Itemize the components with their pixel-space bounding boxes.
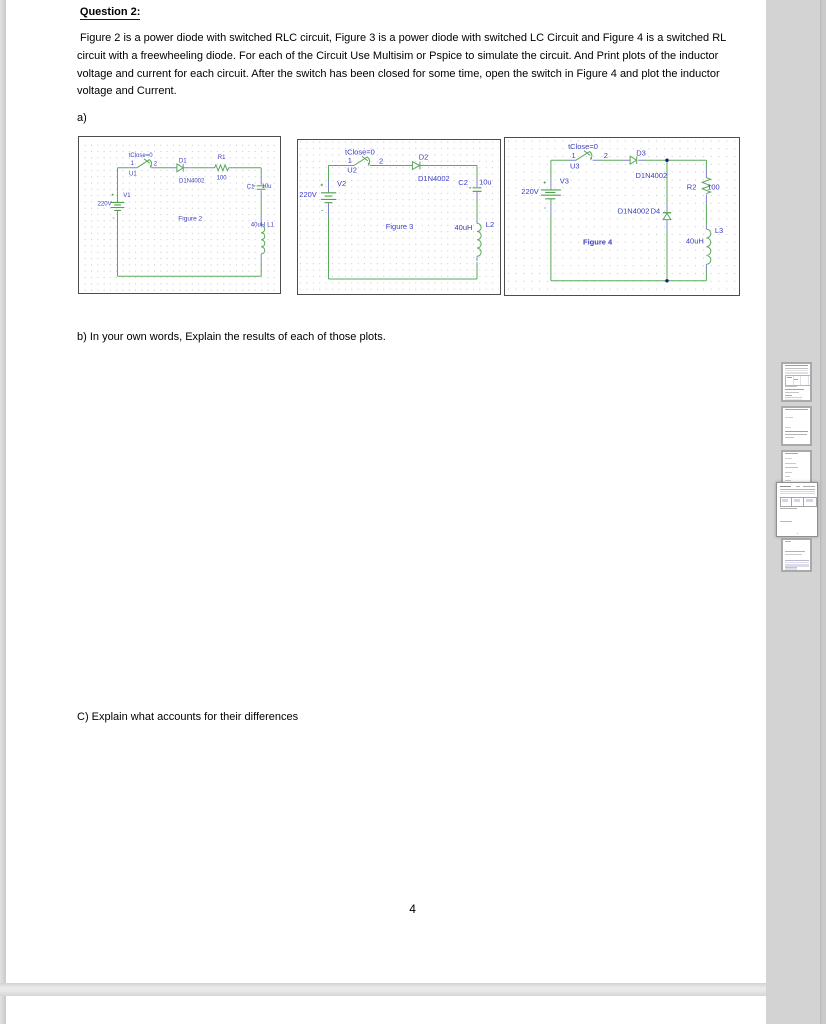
svg-text:D1N4002: D1N4002 — [617, 206, 649, 215]
svg-text:R1: R1 — [217, 155, 225, 161]
svg-text:R2: R2 — [686, 182, 696, 191]
svg-text:U3: U3 — [570, 161, 580, 170]
svg-text:tClose=0: tClose=0 — [568, 141, 598, 150]
svg-text:C2: C2 — [458, 177, 468, 186]
svg-text:Figure 3: Figure 3 — [385, 222, 413, 231]
svg-text:1: 1 — [571, 151, 575, 160]
svg-text:220V: 220V — [299, 189, 317, 198]
svg-text:L2: L2 — [485, 219, 493, 228]
svg-text:D2: D2 — [418, 152, 428, 161]
svg-text:L3: L3 — [714, 225, 722, 234]
svg-text:C1: C1 — [246, 184, 254, 190]
svg-text:40uH: 40uH — [454, 223, 472, 232]
svg-text:tClose=0: tClose=0 — [345, 147, 375, 156]
svg-text:220V: 220V — [97, 202, 111, 208]
svg-text:U1: U1 — [129, 171, 137, 177]
svg-text:2: 2 — [603, 151, 607, 160]
svg-text:D1N4002: D1N4002 — [179, 179, 205, 185]
svg-text:Figure 4: Figure 4 — [583, 237, 613, 246]
svg-text:D1N4002: D1N4002 — [418, 173, 450, 182]
svg-text:Figure 2: Figure 2 — [178, 215, 202, 222]
svg-text:D1N4002: D1N4002 — [635, 170, 667, 179]
svg-text:100: 100 — [216, 175, 227, 181]
svg-text:40uH: 40uH — [250, 223, 264, 229]
svg-text:100: 100 — [707, 182, 720, 191]
svg-text:10u: 10u — [261, 184, 271, 190]
svg-text:tClose=0: tClose=0 — [128, 153, 153, 159]
svg-text:10u: 10u — [479, 177, 492, 186]
svg-text:2: 2 — [379, 156, 383, 165]
svg-text:D4: D4 — [650, 206, 660, 215]
svg-text:D3: D3 — [636, 148, 646, 157]
svg-text:V3: V3 — [559, 176, 568, 185]
svg-text:D1: D1 — [178, 158, 186, 164]
svg-text:L1: L1 — [267, 222, 274, 228]
svg-text:V2: V2 — [337, 179, 346, 188]
svg-text:U2: U2 — [347, 165, 357, 174]
svg-text:220V: 220V — [521, 187, 539, 196]
svg-text:V1: V1 — [123, 193, 131, 199]
svg-text:1: 1 — [347, 156, 351, 165]
svg-text:40uH: 40uH — [685, 236, 703, 245]
